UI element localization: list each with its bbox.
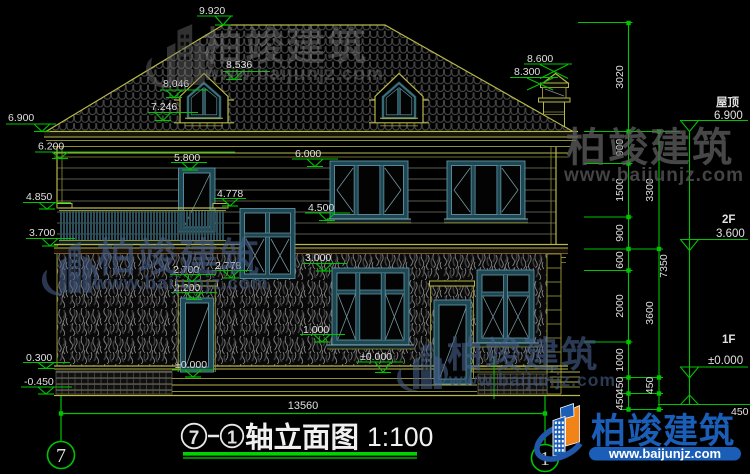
svg-text:1: 1 <box>227 428 237 448</box>
svg-text:1F: 1F <box>722 334 735 346</box>
svg-text:4.500: 4.500 <box>308 202 334 214</box>
svg-text:www.baijunjz.com: www.baijunjz.com <box>448 370 616 390</box>
svg-text:7: 7 <box>56 445 66 467</box>
svg-text:3.600: 3.600 <box>716 228 745 240</box>
svg-text:±0.000: ±0.000 <box>708 355 743 367</box>
svg-text:450: 450 <box>644 377 656 395</box>
svg-text:6.900: 6.900 <box>8 112 34 124</box>
svg-text:600: 600 <box>614 251 626 269</box>
svg-text:1000: 1000 <box>614 348 626 372</box>
svg-text:3020: 3020 <box>614 65 626 89</box>
svg-text:3600: 3600 <box>644 301 656 325</box>
svg-text:柏竣建筑: 柏竣建筑 <box>447 334 599 375</box>
svg-text:±0.000: ±0.000 <box>360 351 392 363</box>
svg-text:柏竣建筑: 柏竣建筑 <box>204 26 368 69</box>
svg-text:8.300: 8.300 <box>514 66 540 78</box>
svg-text:450: 450 <box>614 393 626 411</box>
svg-text:www.baijunjz.com: www.baijunjz.com <box>563 165 744 186</box>
svg-text:7: 7 <box>189 428 200 449</box>
svg-text:900: 900 <box>614 224 626 242</box>
svg-text:4.850: 4.850 <box>26 191 52 203</box>
svg-text:www.baijunjz.com: www.baijunjz.com <box>92 272 269 293</box>
svg-text:2000: 2000 <box>614 294 626 318</box>
svg-text:www.baijunjz.com: www.baijunjz.com <box>608 446 721 461</box>
svg-text:www.baijunjz.com: www.baijunjz.com <box>203 64 384 85</box>
svg-text:6.000: 6.000 <box>295 148 321 160</box>
svg-text:3.700: 3.700 <box>29 227 55 239</box>
svg-text:柏竣建筑: 柏竣建筑 <box>566 126 734 170</box>
svg-text:2F: 2F <box>722 214 735 226</box>
svg-text:1:100: 1:100 <box>367 422 433 452</box>
svg-text:±0.000: ±0.000 <box>175 359 207 371</box>
svg-text:-0.450: -0.450 <box>24 376 54 388</box>
svg-text:3.000: 3.000 <box>305 252 331 264</box>
svg-text:7.246: 7.246 <box>151 101 177 113</box>
svg-text:13560: 13560 <box>288 400 319 412</box>
svg-text:8.600: 8.600 <box>527 53 553 65</box>
svg-text:轴立面图: 轴立面图 <box>245 421 359 454</box>
svg-text:9.920: 9.920 <box>199 5 225 17</box>
svg-text:6.200: 6.200 <box>38 141 64 153</box>
svg-text:7350: 7350 <box>658 254 670 278</box>
svg-text:柏竣建筑: 柏竣建筑 <box>591 411 735 451</box>
svg-text:屋顶: 屋顶 <box>716 95 739 109</box>
